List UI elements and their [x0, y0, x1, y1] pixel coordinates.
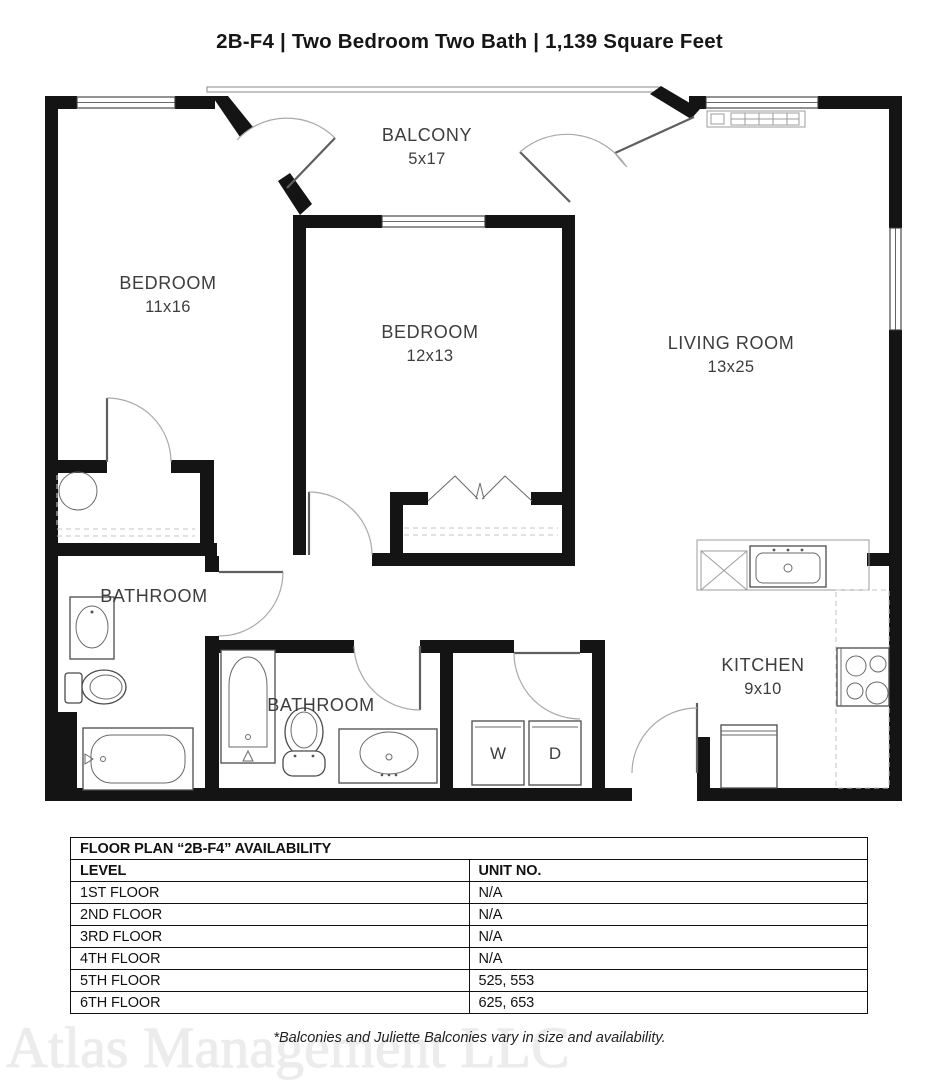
washer-label: W [490, 744, 506, 763]
hvac-vent [707, 111, 805, 127]
bathroom2-fixtures [221, 650, 437, 783]
kitchen-sink [750, 546, 826, 587]
room-label-bedroom2: BEDROOM [381, 322, 478, 342]
room-label-kitchen: KITCHEN [721, 655, 804, 675]
table-row: 4TH FLOOR N/A [71, 948, 868, 970]
table-header-row: LEVEL UNIT NO. [71, 860, 868, 882]
windows-layer [77, 97, 901, 330]
table-row: 1ST FLOOR N/A [71, 882, 868, 904]
room-labels: BALCONY 5x17 BEDROOM 11x16 BEDROOM 12x13… [100, 125, 804, 715]
table-row: 2ND FLOOR N/A [71, 904, 868, 926]
balcony-railing [207, 87, 659, 92]
room-dim-balcony: 5x17 [408, 150, 445, 168]
sink-2 [339, 729, 437, 783]
col-header-level: LEVEL [71, 860, 470, 882]
dryer-label: D [549, 744, 561, 763]
col-header-unit: UNIT NO. [469, 860, 868, 882]
floorplan-drawing: W D BALCONY 5x17 BEDROOM 11x16 BEDROOM 1… [37, 85, 902, 816]
room-dim-bedroom1: 11x16 [145, 298, 191, 316]
bathtub-1 [83, 728, 193, 790]
availability-table: FLOOR PLAN “2B-F4” AVAILABILITY LEVEL UN… [70, 837, 868, 1014]
stove [837, 648, 889, 706]
room-label-bathroom2: BATHROOM [267, 695, 374, 715]
bathroom1-fixtures [65, 597, 193, 790]
dishwasher [701, 551, 747, 590]
doors-layer [107, 117, 697, 773]
room-label-bathroom1: BATHROOM [100, 586, 207, 606]
watermark: Atlas Management LLC [6, 1014, 570, 1080]
room-label-bedroom1: BEDROOM [119, 273, 216, 293]
table-row: 3RD FLOOR N/A [71, 926, 868, 948]
room-dim-living: 13x25 [708, 358, 755, 376]
closet-shelving [57, 472, 558, 536]
refrigerator [721, 725, 777, 788]
room-dim-bedroom2: 12x13 [407, 347, 454, 365]
balcony-disclaimer: *Balconies and Juliette Balconies vary i… [0, 1030, 939, 1046]
toilet-1 [65, 670, 126, 704]
table-title: FLOOR PLAN “2B-F4” AVAILABILITY [71, 838, 868, 860]
table-row: 6TH FLOOR 625, 653 [71, 992, 868, 1014]
room-dim-kitchen: 9x10 [744, 680, 781, 698]
floorplan-page: 2B-F4 | Two Bedroom Two Bath | 1,139 Squ… [0, 0, 939, 1080]
room-label-living: LIVING ROOM [668, 333, 795, 353]
page-title: 2B-F4 | Two Bedroom Two Bath | 1,139 Squ… [0, 30, 939, 54]
toilet-2 [283, 708, 325, 776]
table-title-row: FLOOR PLAN “2B-F4” AVAILABILITY [71, 838, 868, 860]
washer-dryer: W D [472, 721, 581, 785]
room-label-balcony: BALCONY [382, 125, 472, 145]
table-row: 5TH FLOOR 525, 553 [71, 970, 868, 992]
